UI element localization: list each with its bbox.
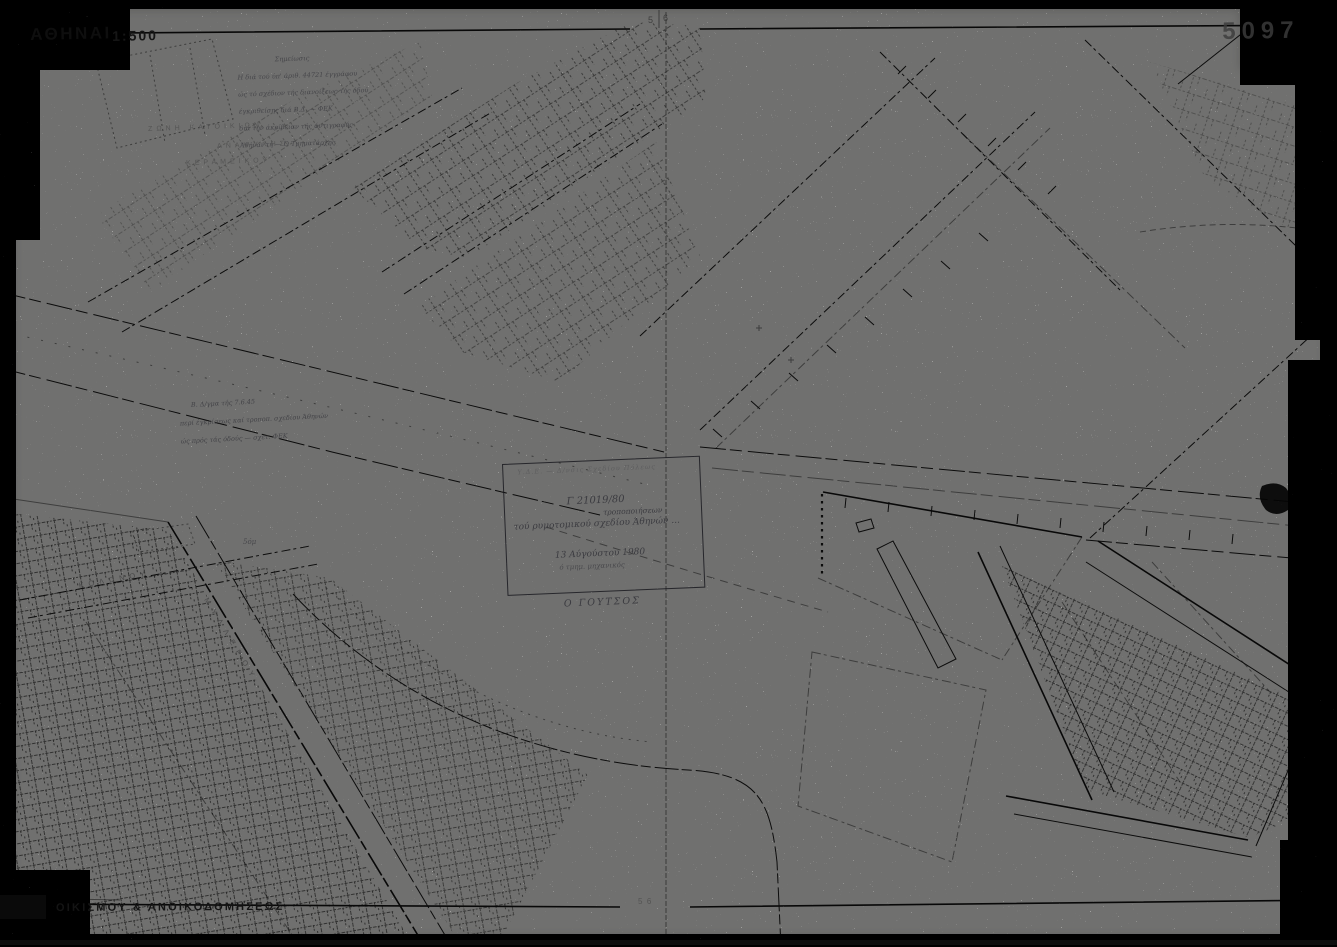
footer-blotch [0,895,46,919]
survey-note-line: έγκριθείσης διά Β.Δ. — ΦΕΚ [239,104,333,115]
survey-note: Σημείωσις Η διά τού ύπ' άριθ. 44721 έγγρ… [228,34,412,159]
stamp-overline: τροποποιήσεων [603,505,663,516]
join-mark-right: 6 [663,13,668,23]
stamp-box: Υ.Δ.Ε. — Δ/νσις Σχεδίου Πόλεως Γ 21019/8… [502,456,705,596]
stamp-subject: τού ρυμοτομικού σχεδίου Άθηνών ... [513,515,697,533]
distance-marker: 5όμ [243,538,256,546]
survey-note-line: Η διά τού ύπ' άριθ. 44721 έγγράφου [237,70,357,82]
stamp-header: Υ.Δ.Ε. — Δ/νσις Σχεδίου Πόλεως [517,463,656,477]
stamp-reference: Γ 21019/80 [566,494,624,507]
map-scale: 1:500 [112,27,158,44]
map-sheet: ΑΘΗΝΑΙ 1:500 5097 5 6 Σημείωσις Η διά το… [0,0,1337,947]
footer-join-marks: 5 6 [638,897,651,906]
decree-note: Β. Δ/γμα τής 7.6.45 περί έγκρίσεως καί τ… [170,385,330,456]
survey-note-title: Σημείωσις [275,51,409,64]
join-mark-left: 5 [648,15,653,25]
stamp-date: 13 Αύγούστου 1980 [555,547,646,561]
sheet-number: 5097 [1222,17,1300,46]
decree-note-line: περί έγκρίσεως καί τροποπ. σχεδίου Άθηνώ… [180,412,328,428]
footer-agency: ΟΙΚΙΣΜΟΥ & ΑΝΟΙΚΟΔΟΜΗΣΕΩΣ [56,901,285,914]
decree-note-line: ώς πρός τάς όδούς — σχετ. ΦΕΚ [181,432,288,446]
approval-stamp: Υ.Δ.Ε. — Δ/νσις Σχεδίου Πόλεως Γ 21019/8… [502,456,708,612]
stamp-role: ό τμημ. μηχανικός [559,561,625,572]
map-title: ΑΘΗΝΑΙ [30,23,112,45]
decree-note-line: Β. Δ/γμα τής 7.6.45 [191,398,256,409]
survey-note-line: ώς τό σχέδιον τής διανοίξεως τής όδού [238,86,368,99]
